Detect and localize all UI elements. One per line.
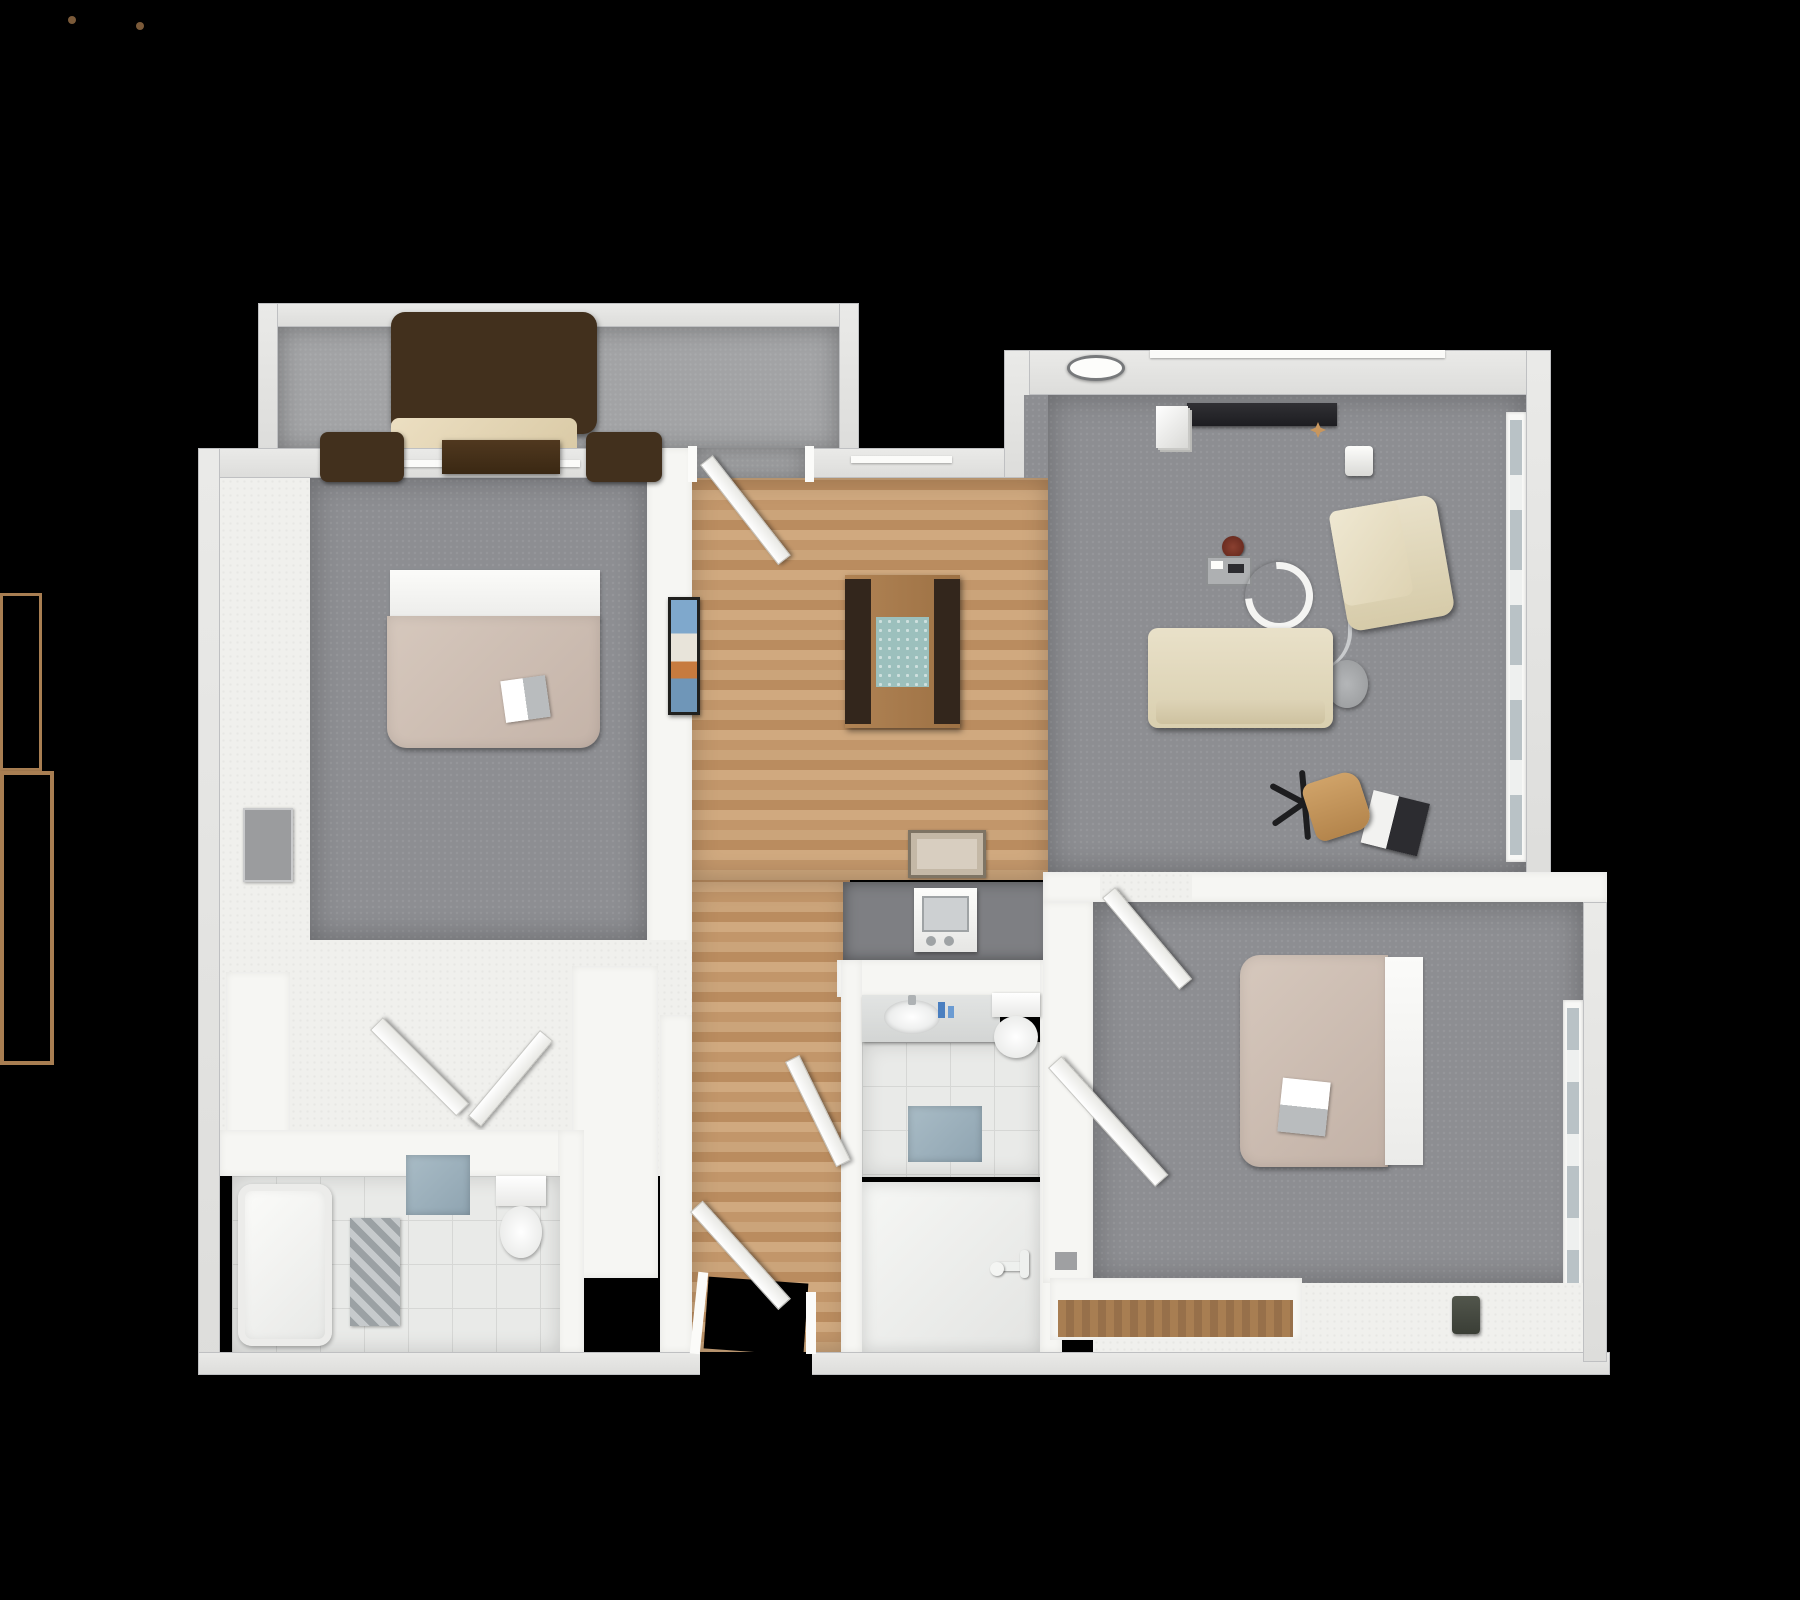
bed1-blanket [387, 616, 600, 748]
plant-pot [1452, 1296, 1480, 1334]
closet-shelf [1058, 1300, 1293, 1337]
decor-bowl [1222, 536, 1244, 558]
closet-shelves-clothes [0, 771, 54, 1065]
bed1-pillow [0, 282, 81, 311]
bed1-magazine [500, 675, 550, 723]
plant-pot [1345, 446, 1373, 476]
bath-mat [406, 1155, 470, 1215]
loveseat-back-cushion [391, 364, 481, 418]
hookup-panel [922, 896, 969, 932]
faucet [908, 995, 916, 1005]
toilet-bowl [500, 1206, 542, 1258]
shower-head [1020, 1250, 1029, 1278]
sofa [1148, 628, 1333, 728]
wall-panel [243, 808, 293, 882]
closet-shelves-clothes [0, 593, 42, 771]
corridor-wall [660, 1015, 692, 1352]
wall-living-right [1526, 350, 1551, 902]
dresser-knob [136, 22, 144, 30]
wall-bedroom2-right [1583, 902, 1607, 1362]
bed1-pillow [0, 309, 77, 357]
placemat-runner-dark [934, 579, 960, 724]
art-sketch [0, 397, 22, 431]
place-setting-plate [0, 1506, 24, 1530]
door-jamb [688, 446, 697, 482]
bed1-headboard [380, 500, 592, 514]
wall-art-blue [668, 597, 700, 715]
towel-ladder [350, 1218, 400, 1326]
placemat-runner-dark [845, 579, 871, 724]
window-glass-right [1510, 420, 1522, 855]
front-door-opening [700, 1352, 812, 1375]
bathroom2-wall-top [837, 960, 1062, 997]
dining-chair [0, 1286, 73, 1332]
bed1-pillow [0, 254, 80, 282]
toilet-tank [992, 993, 1040, 1017]
curtain-rod [851, 456, 952, 463]
runner-rug [908, 830, 986, 878]
closet-niche [572, 966, 658, 1278]
magazines [1156, 406, 1188, 448]
balcony-wall-right [839, 303, 859, 451]
sink-basin [884, 1000, 940, 1034]
wall-art [0, 397, 36, 471]
bed1-sheet [390, 570, 600, 620]
outdoor-loveseat [391, 312, 597, 434]
bathroom1-wall-top [220, 1130, 582, 1176]
floor-plan-render: Welcome [0, 0, 1800, 1600]
toiletries-blue [938, 1002, 945, 1018]
balcony-plant-icon [0, 64, 54, 118]
loveseat-back-cushion [391, 312, 479, 364]
wall-art [0, 471, 36, 539]
dining-table [845, 575, 960, 728]
toilet-bowl [994, 1016, 1038, 1058]
built-in-dresser [0, 539, 172, 593]
nightstand-top [1422, 905, 1480, 962]
place-setting-mat [0, 1476, 30, 1506]
bathroom1-wall-right [558, 1130, 584, 1352]
curtain-rod [1150, 350, 1445, 358]
bedroom1-wall-right [647, 448, 692, 1015]
sofa-cushion [1148, 628, 1218, 694]
window-curtain [0, 1231, 99, 1286]
nightstand-right [588, 500, 645, 565]
bed2-magazine [1277, 1078, 1330, 1137]
dining-chair [0, 1372, 36, 1424]
window-glass [1567, 1008, 1579, 1302]
sofa-back [1156, 700, 1325, 724]
nightstand-bottom [1425, 1172, 1485, 1232]
throw-pillow [1347, 600, 1402, 659]
place-setting-mat [0, 1530, 30, 1560]
dining-chair [0, 1332, 67, 1372]
tray-with-remotes [1206, 556, 1252, 586]
window-blinds [0, 118, 244, 156]
remote [1228, 564, 1244, 573]
toiletries-blue [948, 1006, 954, 1018]
toilet-tank [496, 1176, 546, 1206]
outdoor-coffee-table [442, 440, 560, 474]
chair-cushion [320, 432, 386, 468]
hookup-knob [944, 936, 954, 946]
table-runner-teal [876, 617, 929, 687]
door-jamb [806, 1292, 816, 1354]
bed2-sheet [1385, 957, 1423, 1165]
wall-panel-small [1055, 1252, 1077, 1270]
tv [1187, 403, 1337, 426]
table-lamp-icon [0, 156, 52, 208]
table-lamp-icon [0, 208, 46, 254]
art-sketch [0, 471, 24, 507]
hookup-knob [926, 936, 936, 946]
living-carpet-strip [1024, 395, 1048, 478]
place-setting-mat [0, 1584, 30, 1600]
dresser-knob [68, 16, 76, 24]
armchair [1328, 494, 1456, 633]
balcony [0, 0, 1800, 118]
bathtub [238, 1184, 332, 1346]
balcony-plant-icon [0, 0, 64, 64]
front-door-opening [704, 1277, 809, 1356]
outdoor-chair-right [586, 432, 662, 482]
shower-knob [990, 1262, 1004, 1276]
washer-hookup-box [914, 888, 977, 952]
chair-cushion [586, 432, 644, 468]
bed2-headboard [1494, 958, 1512, 1168]
bed1-pillow [0, 354, 81, 399]
ceiling-light-icon [1067, 355, 1125, 381]
door-jamb [805, 446, 814, 482]
tub-glass-screen [0, 1065, 16, 1183]
tv-console [1150, 400, 1348, 455]
wall-outer-bottom [198, 1352, 1610, 1375]
outdoor-chair-left [320, 432, 404, 482]
remote [1211, 561, 1223, 569]
laptop [1361, 790, 1430, 856]
wall-outer-left [198, 448, 220, 1375]
place-setting-plate [0, 1560, 24, 1584]
bath-mat [908, 1106, 982, 1162]
balcony-wall-left [258, 303, 278, 451]
dining-chair [0, 1424, 36, 1476]
